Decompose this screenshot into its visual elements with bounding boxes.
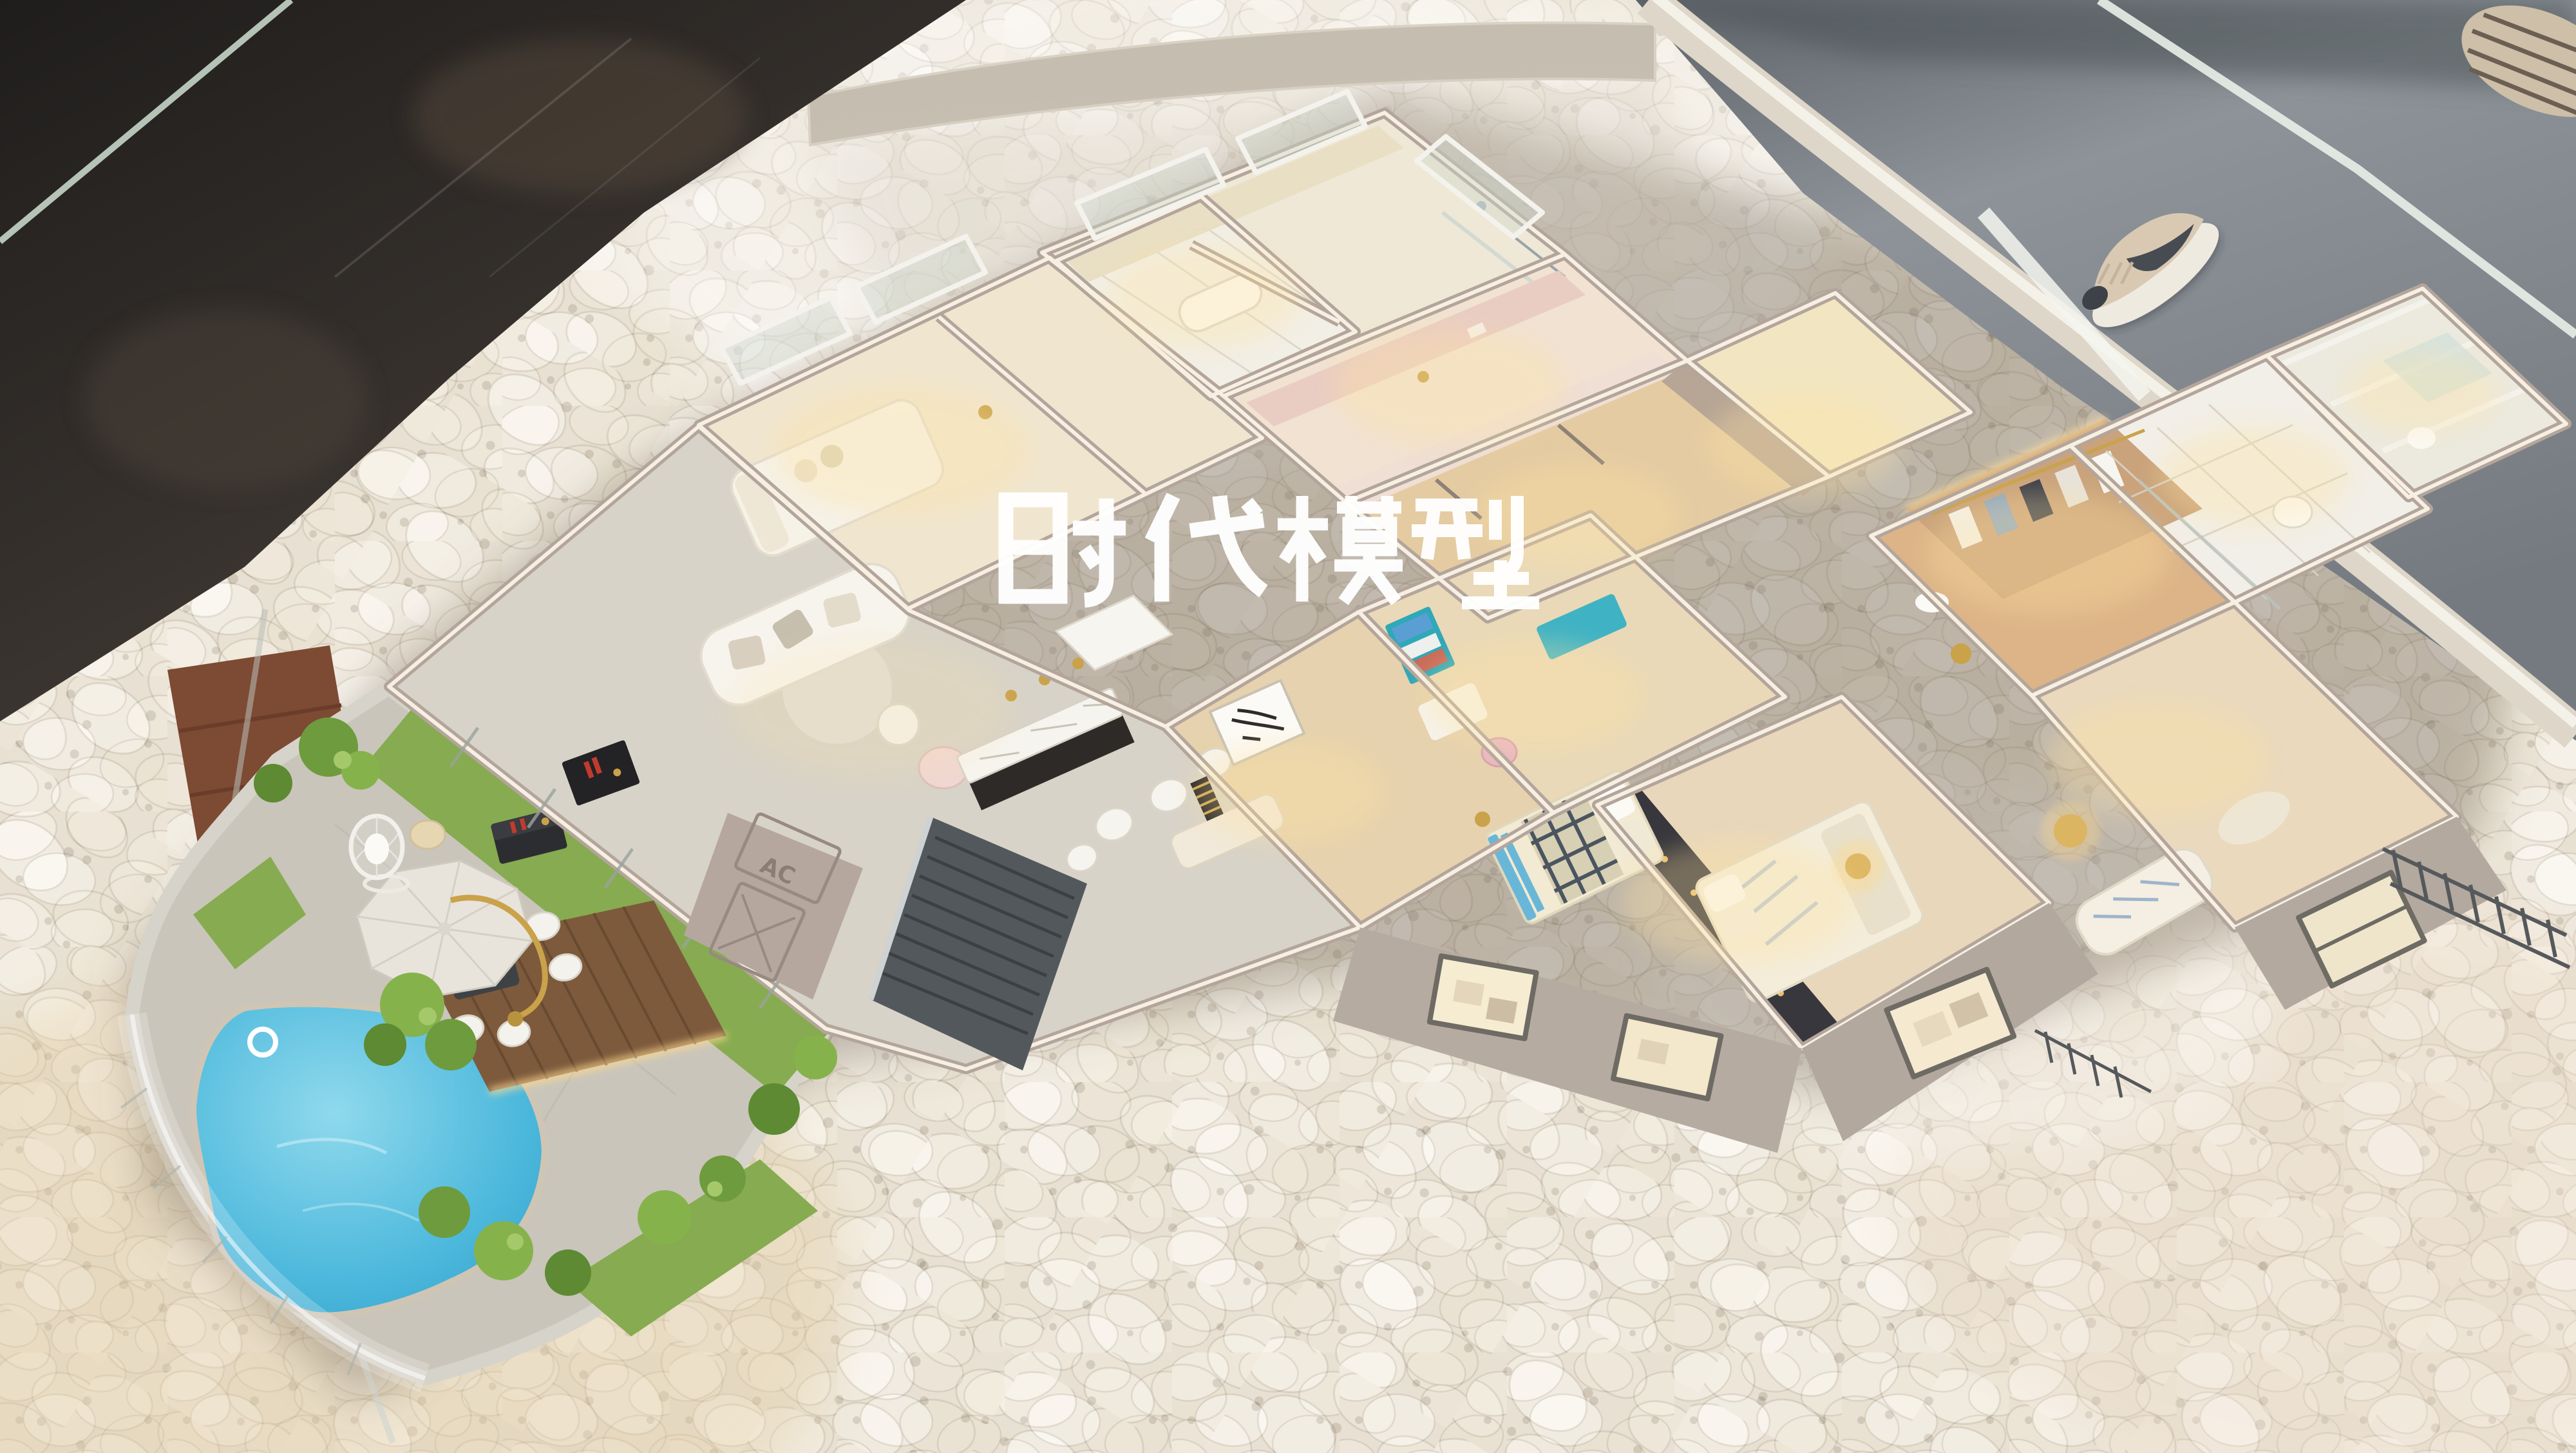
scene-canvas: AC (0, 0, 2576, 1453)
garden-stool (410, 821, 445, 849)
photo-architectural-model-scene: AC (0, 0, 2576, 1453)
kids-lamp (1475, 812, 1490, 827)
closet-lamp (1951, 643, 1971, 664)
